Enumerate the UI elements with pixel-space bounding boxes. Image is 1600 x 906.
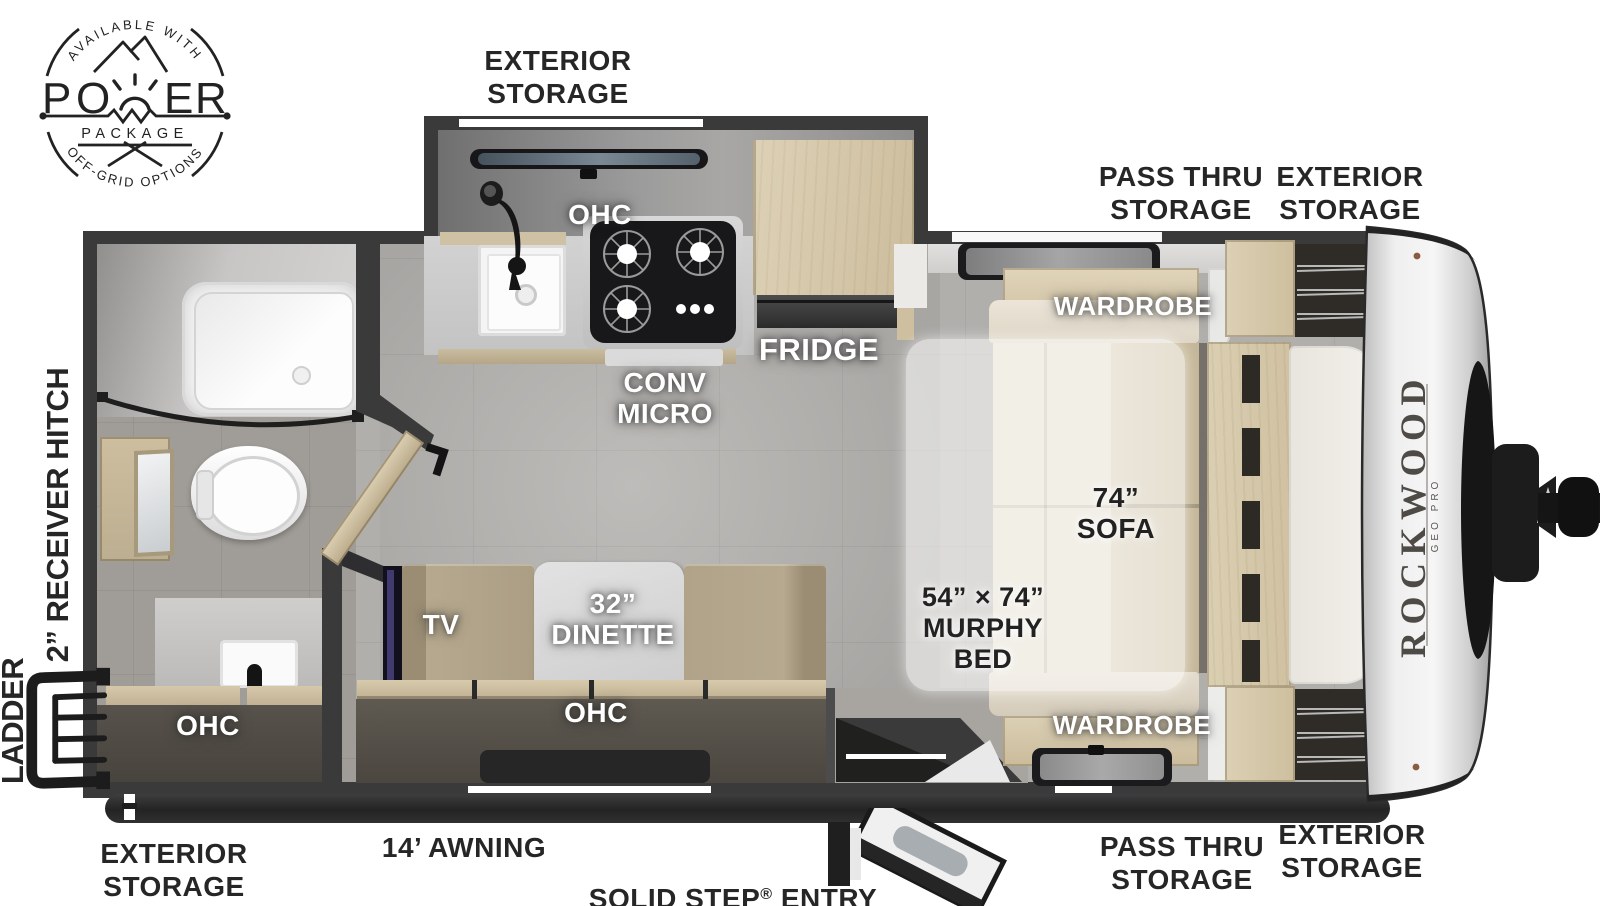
svg-text:PACKAGE: PACKAGE [81,126,189,142]
svg-text:GEO PRO: GEO PRO [1430,478,1441,553]
svg-text:OFF-GRID OPTIONS: OFF-GRID OPTIONS [64,144,206,190]
